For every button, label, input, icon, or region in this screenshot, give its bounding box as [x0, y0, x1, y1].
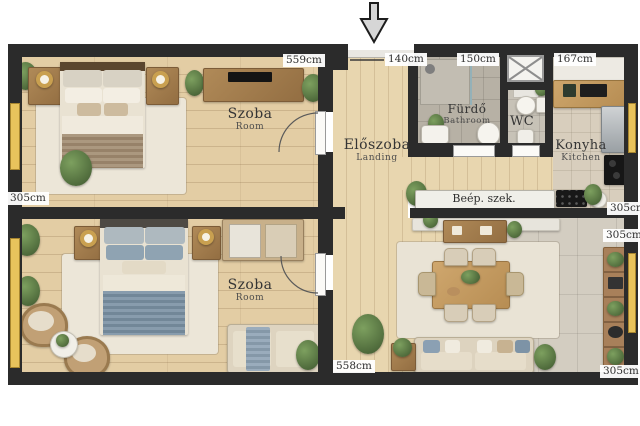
plant: [56, 334, 69, 347]
sheet: [62, 116, 143, 136]
window-bedroom2: [10, 238, 20, 368]
room-name-en: Room: [212, 122, 288, 132]
table-lamp: [152, 71, 169, 88]
door-bedroom2: [315, 253, 326, 296]
bed-double: [100, 219, 188, 335]
oven-range: [556, 190, 587, 207]
dining-chair: [444, 304, 468, 322]
wall-living-kitchen: [410, 208, 626, 218]
room-label-kitchen: Konyha Kitchen: [549, 139, 613, 163]
dining-chair: [506, 272, 524, 296]
sofa-cushion: [421, 352, 472, 370]
room-name-en: Room: [212, 293, 288, 303]
dim-entrance-width: 140cm: [385, 53, 427, 66]
wall-bottom: [8, 372, 638, 385]
kitchen-tray: [580, 84, 607, 97]
dim-living-depth-top: 305cm: [603, 229, 640, 242]
plant: [507, 221, 522, 238]
washbasin: [421, 125, 449, 144]
sofa-cushion: [475, 352, 526, 370]
plant: [607, 252, 624, 267]
entrance-arrow-icon: [359, 2, 389, 44]
room-name: Fürdő: [437, 103, 497, 116]
room-label-hallway: Előszoba Landing: [339, 138, 415, 163]
dining-table: [432, 261, 510, 309]
dim-kitchen-depth: 305cm: [607, 202, 640, 215]
shaft: [507, 55, 544, 82]
wardrobe-sliding: [222, 219, 304, 261]
cushion: [145, 227, 185, 244]
room-name-en: Landing: [339, 153, 415, 163]
wall-entrance-stub: [333, 44, 348, 70]
sofa: [414, 337, 534, 374]
room-name-en: Bathroom: [437, 116, 497, 126]
decor: [452, 226, 462, 235]
cushion: [104, 227, 144, 244]
plant: [185, 70, 204, 96]
room-label-bathroom: Fürdő Bathroom: [437, 103, 497, 126]
dining-chair: [418, 272, 436, 296]
accent-pillow: [77, 103, 101, 116]
wall-console: [443, 220, 507, 243]
door-bedroom1: [315, 111, 326, 155]
built-in-wardrobe-label: Beép. szek.: [430, 192, 538, 205]
centerpiece-plant: [461, 270, 480, 284]
dining-chair: [472, 248, 496, 266]
plant: [584, 184, 602, 205]
chair-cushion: [28, 311, 54, 331]
plant: [393, 338, 412, 357]
plant: [352, 314, 384, 354]
decor: [608, 277, 623, 289]
accent-pillow: [122, 261, 166, 274]
plant: [607, 348, 624, 365]
sofa-pillow: [423, 340, 440, 353]
wardrobe-door: [265, 224, 297, 258]
dim-bedroom1-depth: 305cm: [7, 192, 49, 205]
pillow: [65, 88, 102, 103]
table-lamp: [198, 229, 214, 245]
door-bathroom: [453, 145, 495, 157]
room-name: Előszoba: [339, 138, 415, 153]
dining-chair: [472, 304, 496, 322]
room-name: Szoba: [212, 107, 288, 122]
sofa-pillow: [477, 340, 492, 353]
sofa-pillow: [445, 340, 460, 353]
accent-pillow: [104, 103, 128, 116]
decor: [608, 326, 623, 338]
window-kitchen: [628, 103, 636, 153]
room-name: Szoba: [212, 278, 288, 293]
plant: [296, 340, 320, 370]
sofa-throw: [246, 327, 270, 371]
room-label-bedroom1: Szoba Room: [212, 107, 288, 132]
cushion: [63, 70, 102, 87]
tv-console: [203, 68, 304, 102]
dim-living-depth: 305cm: [600, 365, 640, 378]
bowl: [447, 287, 460, 296]
dim-bedroom1-width: 559cm: [283, 54, 325, 67]
pillow: [145, 245, 183, 260]
sofa-pillow: [497, 340, 513, 353]
toilet: [516, 96, 536, 115]
window-bedroom1: [10, 103, 20, 170]
floor-plan: Szoba Room Szoba Room Előszoba Landing F…: [0, 0, 640, 426]
table-lamp: [80, 230, 97, 247]
door-wc: [512, 145, 540, 157]
plant: [607, 301, 624, 316]
wall-mid-lower: [318, 290, 333, 372]
room-name: Konyha: [549, 139, 613, 153]
cushion: [103, 70, 142, 87]
wardrobe-door: [229, 224, 261, 258]
plant: [60, 150, 92, 186]
blanket: [103, 291, 185, 335]
wardrobe-text: Beép. szek.: [430, 192, 538, 205]
dining-chair: [444, 248, 468, 266]
wall-bedroom-divider: [8, 207, 345, 219]
sofa-pillow: [515, 340, 530, 353]
decor: [480, 226, 492, 235]
kitchen-counter: [553, 80, 628, 108]
plant: [534, 344, 556, 370]
window-living: [628, 253, 636, 333]
room-label-wc: WC: [504, 114, 540, 129]
room-name-en: Kitchen: [549, 153, 613, 163]
wall-mid-center: [318, 152, 333, 255]
dim-living-width: 558cm: [333, 360, 375, 373]
room-name: WC: [504, 114, 540, 129]
room-label-bedroom2: Szoba Room: [212, 278, 288, 303]
coffee-machine: [563, 84, 576, 97]
pillow: [106, 245, 144, 260]
burner: [613, 172, 620, 179]
pillow: [103, 88, 140, 103]
tv: [228, 72, 272, 82]
dim-kitchen-width: 167cm: [554, 53, 596, 66]
table-lamp: [36, 71, 53, 88]
dim-bathroom-width: 150cm: [457, 53, 499, 66]
